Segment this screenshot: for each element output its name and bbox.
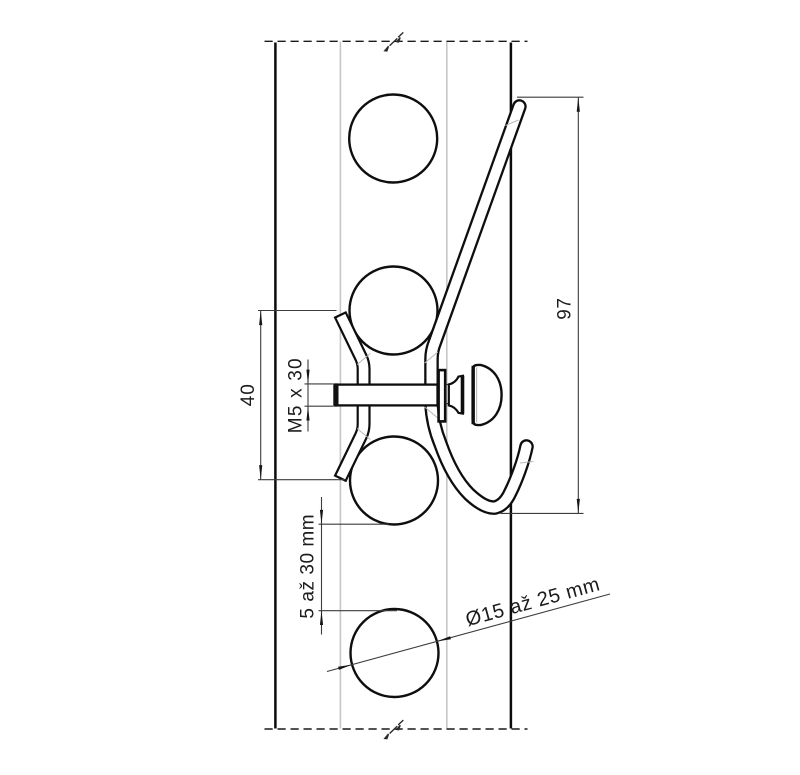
svg-text:40: 40 <box>238 383 259 406</box>
svg-text:97: 97 <box>554 297 575 319</box>
svg-text:M5 x 30: M5 x 30 <box>286 357 307 433</box>
svg-text:5 až 30 mm: 5 až 30 mm <box>297 514 318 619</box>
